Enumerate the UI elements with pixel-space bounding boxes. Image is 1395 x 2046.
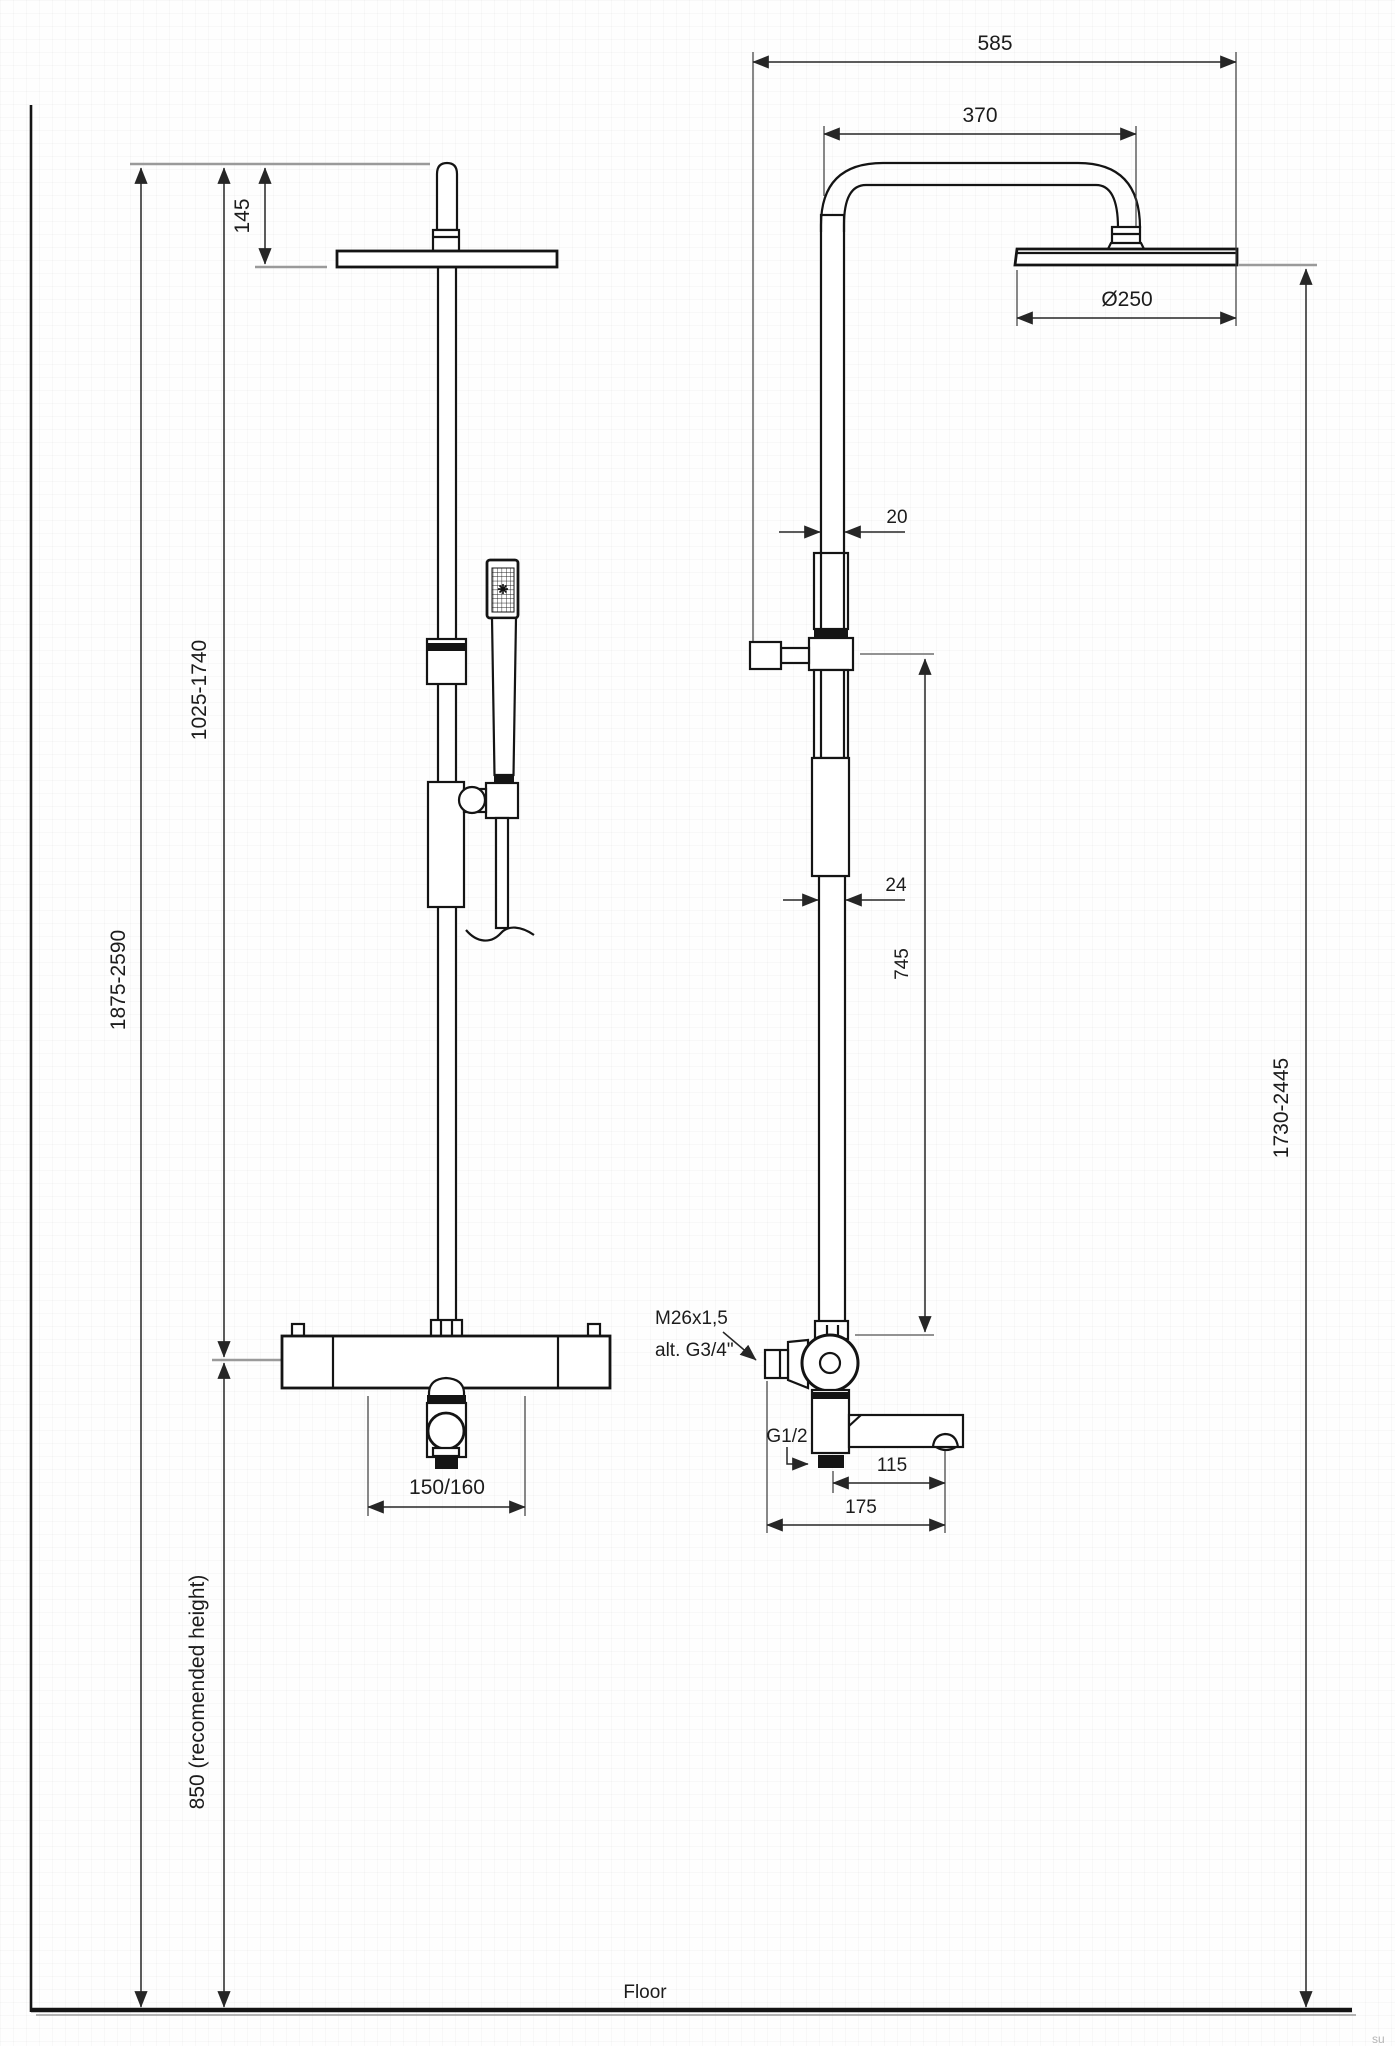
drawing-frame: [31, 105, 1356, 2015]
watermark: su: [1372, 2032, 1385, 2046]
dim-115-label: 115: [877, 1455, 907, 1476]
overhead-shower-side: [1015, 249, 1237, 265]
arm-nut-side: [1112, 227, 1140, 244]
hand-shower-connector-band: [494, 775, 514, 783]
dimensions: 585 370 Ø250 145 1025-1740 1875-2590 850…: [107, 32, 1306, 2007]
bath-spout-side: [849, 1415, 963, 1447]
technical-drawing-canvas: 585 370 Ø250 145 1025-1740 1875-2590 850…: [0, 0, 1395, 2046]
temperature-knob-center: [820, 1353, 840, 1373]
diverter-knob: [428, 1413, 464, 1449]
holder-pivot: [459, 787, 485, 813]
dim-370-label: 370: [962, 104, 997, 127]
thread-m26-label: M26x1,5: [655, 1308, 728, 1329]
outlet-connector-side: [818, 1455, 844, 1468]
dim-145-label: 145: [231, 198, 254, 233]
reference-lines: [130, 164, 1317, 1360]
hand-shower-handle: [492, 618, 516, 775]
thread-g12-label: G1/2: [766, 1426, 807, 1447]
dim-250-label: Ø250: [1101, 288, 1152, 311]
dim-20-label: 20: [886, 507, 907, 528]
floor-label: Floor: [623, 1982, 667, 2003]
bracket-knob-side: [750, 642, 781, 669]
lower-tube-side: [812, 758, 849, 876]
dim-745-label: 745: [892, 948, 913, 980]
dim-24-label: 24: [885, 875, 907, 896]
shower-hose: [496, 818, 508, 928]
diverter-band: [427, 1395, 466, 1403]
outlet-connector-front: [435, 1457, 458, 1469]
side-view: [750, 163, 1237, 1468]
dim-1025-1740-label: 1025-1740: [188, 640, 211, 740]
dim-1875-2590-label: 1875-2590: [107, 930, 130, 1030]
wall-connector-side: [765, 1350, 788, 1378]
overhead-shower-front: [337, 251, 557, 267]
slider-clamp-band: [427, 643, 466, 651]
shower-dimension-drawing: 585 370 Ø250 145 1025-1740 1875-2590 850…: [0, 0, 1395, 2046]
bracket-arm-side: [781, 648, 809, 663]
wall-bracket-side: [809, 638, 853, 670]
riser-pipe-lower-side: [819, 876, 845, 1322]
shower-arm-inner: [844, 185, 1118, 232]
mixer-inlet-nut-front: [431, 1320, 462, 1337]
front-view: [282, 163, 610, 1469]
dim-850-label: 850 (recomended height): [186, 1575, 209, 1810]
dim-175-label: 175: [845, 1497, 877, 1518]
mixer-column-band: [812, 1392, 849, 1399]
head-nut-front: [433, 230, 459, 251]
sleeve-nut-band: [814, 629, 848, 638]
mixer-screw-left: [292, 1324, 304, 1336]
leader-g12: [787, 1447, 808, 1464]
spray-face-center-jet: [498, 584, 508, 594]
shower-arm-outer: [821, 163, 1140, 232]
hand-shower-holder: [486, 783, 518, 818]
dim-150-160-label: 150/160: [409, 1476, 485, 1499]
mixer-column-side: [812, 1390, 849, 1453]
diverter-base: [433, 1448, 459, 1456]
dim-1730-2445-label: 1730-2445: [1270, 1058, 1293, 1158]
dim-585-label: 585: [977, 32, 1012, 55]
hose-squiggle: [466, 928, 534, 941]
thread-alt-label: alt. G3/4": [655, 1340, 734, 1361]
pipe-top-cap-front: [437, 163, 457, 230]
mixer-screw-right: [588, 1324, 600, 1336]
